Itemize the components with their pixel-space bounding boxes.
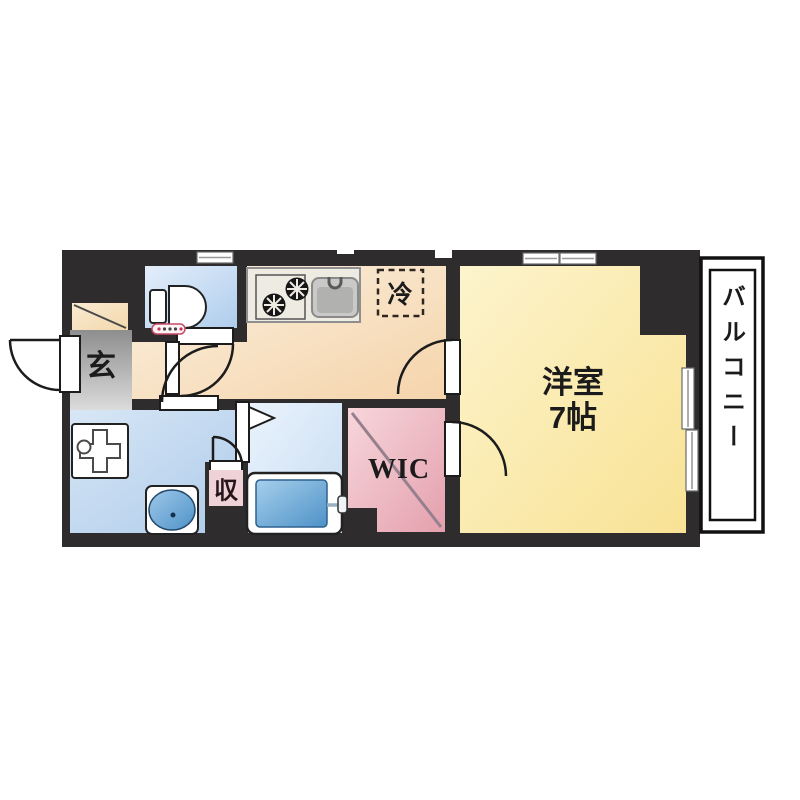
- wall-vent-notch: [435, 243, 452, 258]
- window-main-top: [523, 253, 596, 264]
- entrance-door: [10, 336, 80, 392]
- main-room-label: 洋室 7帖: [542, 365, 604, 435]
- main-room-name: 洋室: [542, 365, 604, 400]
- refrigerator-label: 冷: [387, 275, 412, 311]
- wic-label: WIC: [368, 454, 430, 486]
- floor-plan-drawing: [0, 0, 800, 800]
- tub-faucet: [338, 496, 347, 513]
- wall-vent-notch: [337, 248, 354, 254]
- floor-plan: 玄 洋室 7帖 WIC 冷 収 バルコニー: [0, 0, 800, 800]
- washing-machine-pan-icon: [72, 424, 128, 478]
- bathtub-icon: [247, 473, 347, 534]
- kitchen-sink: [312, 277, 358, 317]
- stove-burner: [286, 278, 309, 301]
- window-toilet-top: [197, 252, 233, 263]
- main-room-size: 7帖: [542, 400, 604, 435]
- storage-label: 収: [214, 471, 238, 506]
- entrance-label: 玄: [86, 341, 116, 385]
- kitchen-counter: [247, 268, 360, 322]
- balcony-label: バルコニー: [714, 284, 749, 459]
- stove-burner: [263, 294, 286, 317]
- wash-basin-icon: [146, 486, 198, 534]
